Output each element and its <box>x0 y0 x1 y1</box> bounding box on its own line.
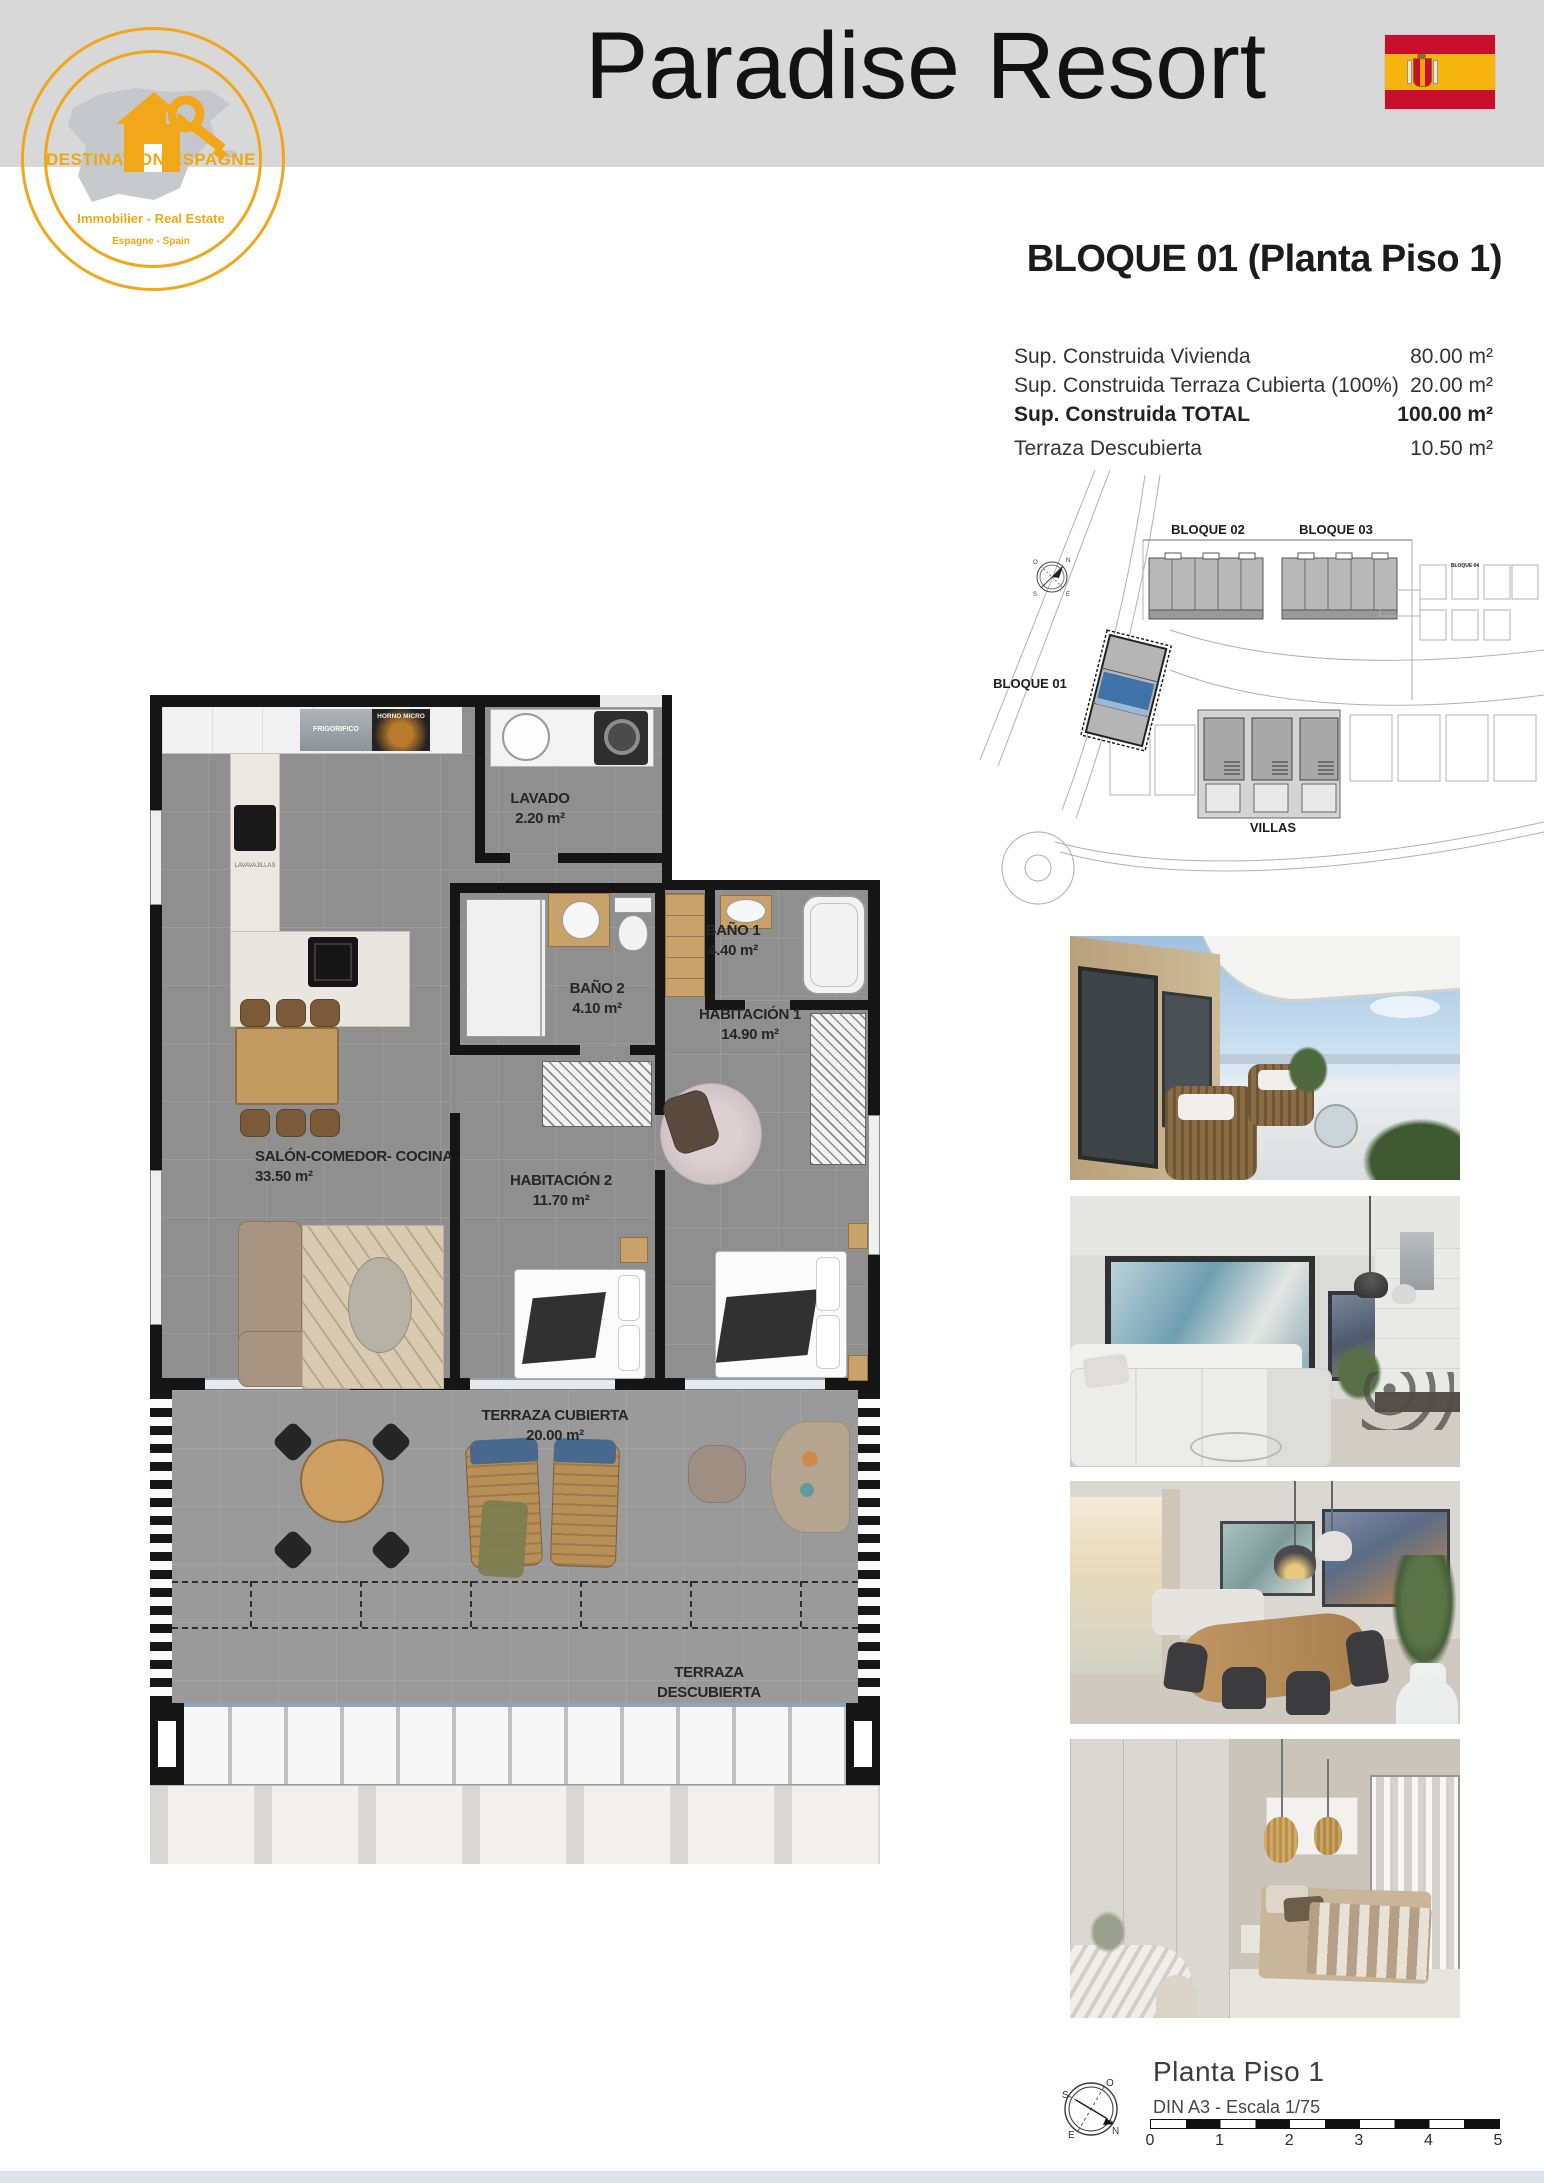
window <box>150 1170 162 1325</box>
compass-letter: E <box>1068 2130 1075 2141</box>
pillow <box>618 1275 640 1321</box>
surface-row: Sup. Construida Vivienda 80.00 m² <box>1014 342 1493 371</box>
site-compass-icon: N O S E <box>1033 558 1070 598</box>
room-label-bano2: BAÑO 2 4.10 m² <box>532 979 662 1019</box>
render-shape <box>1281 1739 1283 1819</box>
roundabout <box>1002 832 1074 904</box>
surface-row: Terraza Descubierta 10.50 m² <box>1014 434 1493 463</box>
terrace-pillar-inner <box>854 1721 872 1767</box>
bloque03-label: BLOQUE 03 <box>1299 522 1373 537</box>
bed-throw <box>716 1289 818 1363</box>
surface-label: Terraza Descubierta <box>1014 434 1202 463</box>
photo-bedroom-render <box>1070 1739 1460 2018</box>
dining-chair <box>310 1109 340 1137</box>
spain-flag-icon <box>1385 35 1495 109</box>
terrace-wall <box>858 1390 880 1705</box>
render-shape <box>1362 1118 1460 1180</box>
terrace-boundary-tick <box>580 1581 582 1627</box>
wall <box>655 883 665 1055</box>
page-bottom-strip <box>0 2171 1544 2183</box>
surface-row-total: Sup. Construida TOTAL 100.00 m² <box>1014 400 1493 429</box>
wall <box>662 880 880 890</box>
door-gap <box>580 1045 630 1055</box>
compass-letter: O <box>1033 560 1038 566</box>
terrace-boundary-line <box>172 1627 858 1629</box>
page-title: Paradise Resort <box>585 19 1266 114</box>
surface-value: 20.00 m² <box>1410 371 1493 400</box>
washing-machine-door <box>604 719 640 755</box>
cooktop <box>308 937 358 987</box>
ground-level <box>150 1785 880 1864</box>
compass-letter: N <box>1112 2126 1119 2137</box>
wall <box>655 1045 665 1390</box>
room-label-bano1: BAÑO 1 4.40 m² <box>668 921 798 961</box>
pillow <box>816 1315 840 1369</box>
pillow <box>618 1325 640 1371</box>
render-shape <box>1264 1817 1298 1863</box>
render-shape <box>1306 1902 1432 1980</box>
compass-letter: S <box>1062 2090 1069 2101</box>
nightstand <box>848 1223 868 1249</box>
dining-chair <box>240 999 270 1027</box>
render-shape <box>1314 1817 1342 1855</box>
render-shape <box>1369 1196 1371 1274</box>
photo-terrace-render <box>1070 936 1460 1180</box>
scale-tick: 2 <box>1285 2132 1294 2150</box>
surface-table: Sup. Construida Vivienda 80.00 m² Sup. C… <box>1014 342 1493 463</box>
surface-row: Sup. Construida Terraza Cubierta (100%) … <box>1014 371 1493 400</box>
terrace-boundary-line <box>172 1581 858 1583</box>
window <box>150 810 162 905</box>
photo-dining-room-render <box>1070 1481 1460 1724</box>
scale-tick: 1 <box>1215 2132 1224 2150</box>
floor-plan: FRIGORIFICO HORNO MICRO LAVAVAJILLAS LAV… <box>150 695 880 1863</box>
balustrade <box>172 1703 858 1785</box>
terrace-boundary-tick <box>250 1581 252 1627</box>
surface-value: 100.00 m² <box>1397 400 1493 429</box>
wall <box>475 853 672 863</box>
render-shape <box>1344 1629 1389 1688</box>
terrace-table <box>300 1439 384 1523</box>
terrace-boundary-tick <box>470 1581 472 1627</box>
terrace-wall <box>150 1390 172 1705</box>
dining-table <box>235 1027 339 1105</box>
oven-microwave: HORNO MICRO <box>372 709 430 751</box>
nightstand <box>620 1237 648 1263</box>
fridge: FRIGORIFICO <box>300 709 372 751</box>
logo-map-house-key-icon <box>58 76 248 216</box>
door-gap <box>450 1055 460 1113</box>
room-label-terraza-cubierta: TERRAZA CUBIERTA 20.00 m² <box>475 1406 635 1446</box>
wardrobe <box>542 1061 652 1127</box>
dishwasher-label: LAVAVAJILLAS <box>216 863 294 873</box>
entrance-door <box>600 695 662 708</box>
compass-letter: E <box>1066 592 1070 598</box>
scale-tick: 4 <box>1424 2132 1433 2150</box>
render-shape <box>1316 1531 1352 1561</box>
footer-title: Planta Piso 1 <box>1153 2056 1325 2088</box>
villas-highlighted <box>1198 710 1340 818</box>
render-shape <box>1156 1975 1198 2018</box>
bathtub-inner <box>810 903 858 987</box>
render-shape <box>1078 966 1158 1169</box>
footer-compass-icon: O S E N <box>1056 2074 1126 2144</box>
dining-chair <box>276 1109 306 1137</box>
wall <box>450 883 460 1390</box>
wall <box>460 1045 660 1055</box>
render-shape <box>1274 1545 1316 1579</box>
render-shape <box>1392 1555 1456 1671</box>
curved-sofa <box>770 1421 850 1533</box>
surface-label: Sup. Construida TOTAL <box>1014 400 1250 429</box>
dining-chair <box>310 999 340 1027</box>
window <box>868 1115 880 1255</box>
bloque02-building <box>1149 553 1263 619</box>
flag-stripe <box>1385 54 1495 90</box>
render-shape <box>1286 1671 1330 1715</box>
compass-letter: S <box>1033 592 1037 598</box>
laundry-sink <box>502 713 550 761</box>
bed-throw <box>522 1292 606 1364</box>
render-shape <box>1286 1044 1330 1096</box>
block-heading: BLOQUE 01 (Planta Piso 1) <box>1027 238 1502 281</box>
dining-chair <box>276 999 306 1027</box>
photo-living-room-render <box>1070 1196 1460 1467</box>
scale-tick: 5 <box>1494 2132 1503 2150</box>
flag-stripe <box>1385 90 1495 109</box>
terrace-boundary-tick <box>360 1581 362 1627</box>
pillow <box>816 1257 840 1311</box>
sliding-door <box>470 1378 615 1390</box>
wall <box>475 695 485 863</box>
site-plan: N O S E BLOQUE 02 BLOQUE 03 BLOQUE 04 BL… <box>960 470 1544 915</box>
render-shape <box>1220 1054 1460 1064</box>
room-label-lavado: LAVADO 2.20 m² <box>480 789 600 829</box>
render-shape <box>1190 1432 1282 1462</box>
scale-bar <box>1150 2119 1500 2129</box>
terrace-boundary-tick <box>800 1581 802 1627</box>
render-shape <box>1082 1353 1130 1389</box>
wall <box>150 695 672 707</box>
render-shape <box>1314 1104 1358 1148</box>
render-shape <box>1400 1232 1434 1290</box>
render-shape <box>1163 1640 1209 1693</box>
scale-tick: 0 <box>1146 2132 1155 2150</box>
vanity-sink <box>562 901 600 939</box>
sliding-door <box>685 1378 825 1390</box>
logo-subtagline: Espagne - Spain <box>31 236 271 247</box>
render-shape <box>1178 1094 1234 1120</box>
bloque04-label: BLOQUE 04 <box>1451 563 1480 569</box>
flag-stripe <box>1385 35 1495 54</box>
pouf <box>688 1445 746 1503</box>
flag-pillar <box>1407 60 1412 84</box>
render-shape <box>1088 1909 1128 1955</box>
towel <box>477 1499 528 1578</box>
villas-label: VILLAS <box>1250 820 1297 835</box>
render-shape <box>1294 1481 1296 1551</box>
brochure-page: Paradise Resort DESTINATION ESPAGNE Immo… <box>0 0 1544 2183</box>
scale-tick: 3 <box>1354 2132 1363 2150</box>
flag-pillar <box>1433 60 1438 84</box>
bloque01-building <box>1081 630 1171 751</box>
surface-value: 10.50 m² <box>1410 434 1493 463</box>
logo-brand-text: DESTINATION ESPAGNE <box>31 150 271 170</box>
roundabout-center <box>1025 855 1051 881</box>
footer-scale-note: DIN A3 - Escala 1/75 <box>1153 2097 1320 2118</box>
throw-pillow <box>802 1451 818 1467</box>
door-gap <box>510 853 558 863</box>
dining-chair <box>240 1109 270 1137</box>
render-shape <box>1370 996 1440 1018</box>
room-label-habitacion2: HABITACIÓN 2 11.70 m² <box>496 1171 626 1211</box>
room-label-habitacion1: HABITACIÓN 1 14.90 m² <box>680 1005 820 1045</box>
nightstand <box>848 1355 868 1381</box>
wall <box>450 883 662 893</box>
render-shape <box>1354 1272 1388 1298</box>
terrace-boundary-tick <box>690 1581 692 1627</box>
flag-coat-of-arms <box>1413 58 1432 87</box>
render-shape <box>1331 1481 1333 1536</box>
surface-label: Sup. Construida Terraza Cubierta (100%) <box>1014 371 1399 400</box>
bloque01-label: BLOQUE 01 <box>993 676 1067 691</box>
render-shape <box>1222 1667 1266 1709</box>
logo-tagline: Immobilier - Real Estate <box>31 211 271 226</box>
render-shape <box>1392 1284 1416 1304</box>
render-shape <box>1362 1372 1454 1430</box>
compass-letter: N <box>1066 558 1070 564</box>
coffee-table <box>348 1257 412 1353</box>
toilet <box>618 915 648 951</box>
toilet-tank <box>614 897 652 913</box>
kitchen-sink <box>234 805 276 851</box>
throw-pillow <box>800 1483 814 1497</box>
bloque02-label: BLOQUE 02 <box>1171 522 1245 537</box>
render-shape <box>1327 1759 1329 1819</box>
surface-value: 80.00 m² <box>1410 342 1493 371</box>
render-shape <box>1070 1497 1166 1673</box>
terrace-pillar-inner <box>158 1721 176 1767</box>
room-label-salon: SALÓN-COMEDOR- COCINA 33.50 m² <box>255 1147 475 1187</box>
surface-label: Sup. Construida Vivienda <box>1014 342 1251 371</box>
vanity-sink <box>726 899 766 923</box>
compass-letter: O <box>1106 2078 1114 2089</box>
